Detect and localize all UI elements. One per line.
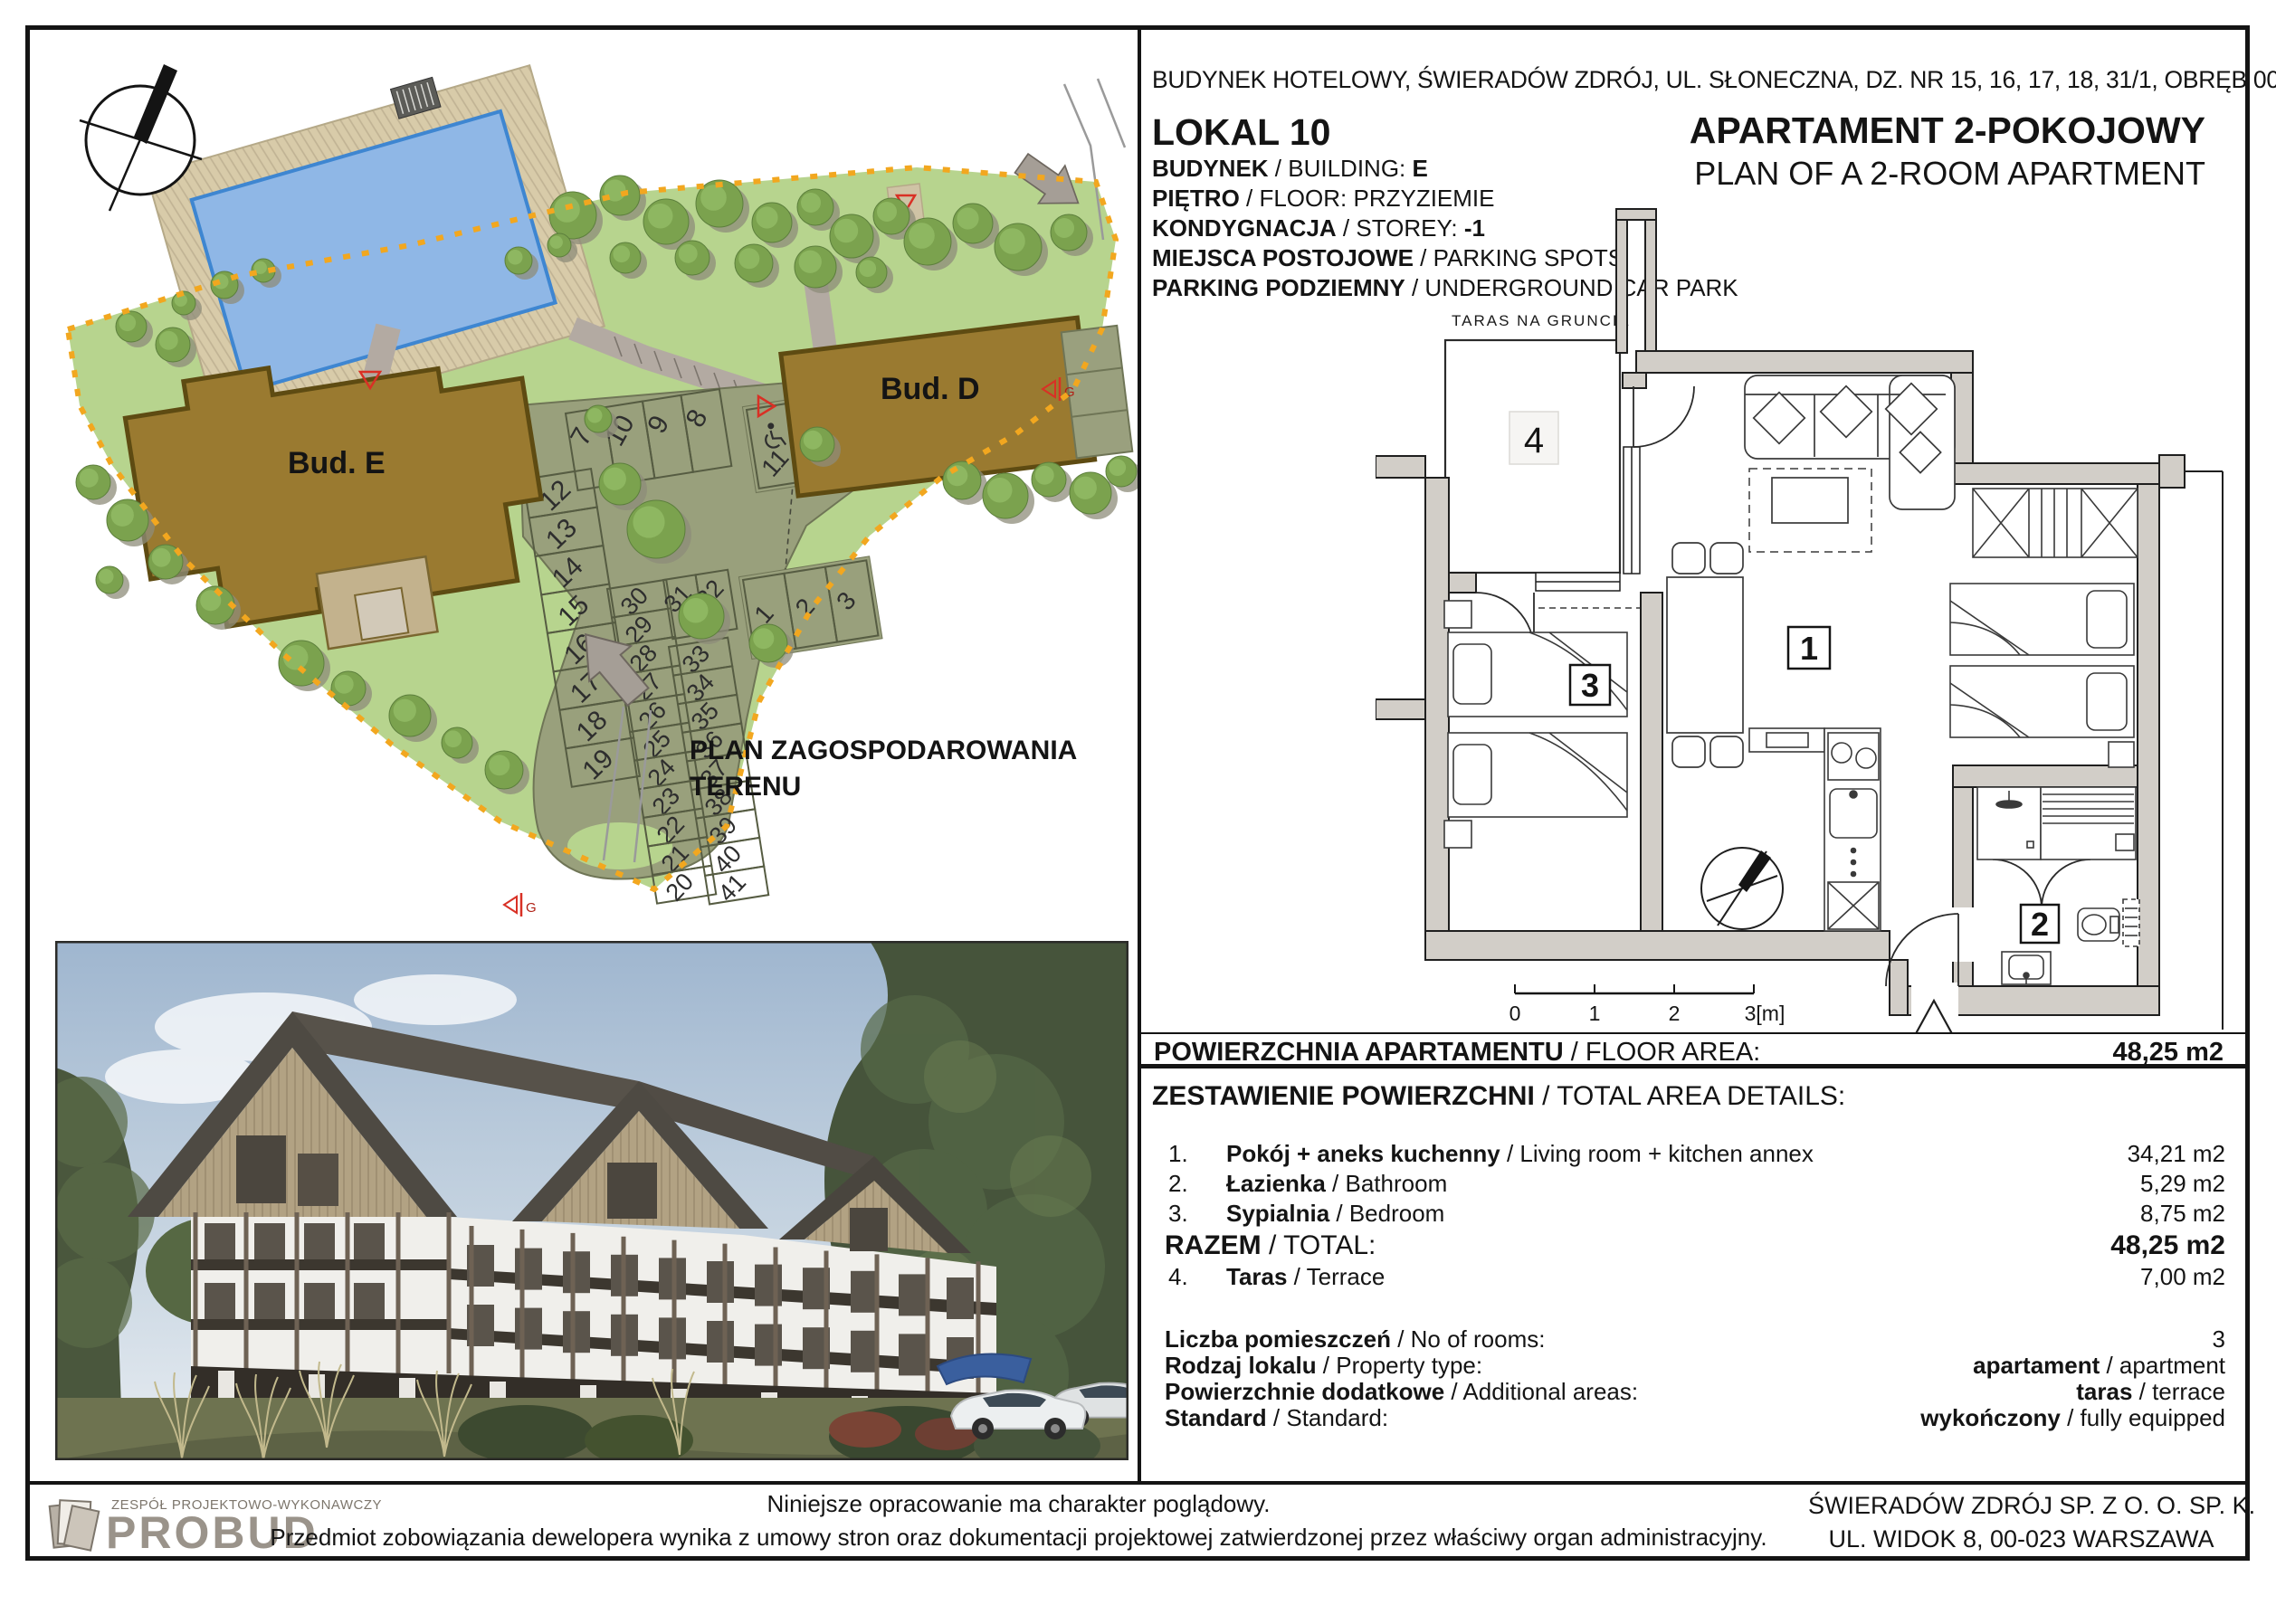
plan-compass-icon — [1701, 848, 1783, 929]
vertical-divider — [1138, 30, 1141, 1481]
wardrobe — [1973, 489, 2138, 557]
area-details-table: 1.Pokój + aneks kuchenny / Living room +… — [1152, 1139, 2225, 1292]
room-bedroom-label: 3 — [1570, 665, 1610, 705]
svg-text:0: 0 — [1509, 1002, 1521, 1025]
apartment-title-pl: APARTAMENT 2-POKOJOWY — [1690, 109, 2205, 152]
area-row: 1.Pokój + aneks kuchenny / Living room +… — [1152, 1139, 2225, 1169]
disclaimer-line2: Przedmiot zobowiązania dewelopera wynika… — [243, 1524, 1795, 1552]
spec-row: Liczba pomieszczeń / No of rooms:3 — [1152, 1326, 2225, 1353]
site-plan-map: 7109812131415161718193029282726252423222… — [30, 30, 1138, 945]
svg-text:3: 3 — [1581, 667, 1599, 704]
svg-text:4: 4 — [1524, 421, 1544, 461]
area-row-total: RAZEM / TOTAL:48,25 m2 — [1152, 1229, 2225, 1262]
site-plan-caption-line1: PLAN ZAGOSPODAROWANIA — [690, 736, 1077, 765]
context-lines — [2185, 471, 2223, 1030]
site-plan-caption-line2: TERENU — [690, 772, 801, 802]
scale-bar — [1515, 984, 1754, 993]
area-row: 2.Łazienka / Bathroom5,29 m2 — [1152, 1169, 2225, 1199]
room-terrace-label: 4 — [1509, 412, 1558, 464]
bedroom-furniture — [1444, 601, 1627, 848]
unit-spec-rows: Liczba pomieszczeń / No of rooms:3Rodzaj… — [1152, 1326, 2225, 1431]
spec-row: Powierzchnie dodatkowe / Additional area… — [1152, 1379, 2225, 1405]
building-rendering-photo — [55, 941, 1128, 1460]
floor-area-label: POWIERZCHNIA APARTAMENTU / FLOOR AREA: — [1154, 1038, 1760, 1068]
sheet-address: BUDYNEK HOTELOWY, ŚWIERADÓW ZDRÓJ, UL. S… — [1152, 66, 2276, 94]
company-address: UL. WIDOK 8, 00-023 WARSZAWA — [1808, 1525, 2234, 1553]
floor-area-value: 48,25 m2 — [2112, 1038, 2224, 1068]
coffee-table — [1772, 478, 1848, 523]
svg-text:1: 1 — [1800, 630, 1818, 667]
svg-text:2: 2 — [1669, 1002, 1681, 1025]
guest-beds — [1950, 584, 2134, 767]
building-e-label: Bud. E — [288, 446, 386, 480]
svg-text:3[m]: 3[m] — [1745, 1002, 1786, 1025]
dining-set — [1667, 543, 1743, 767]
floor-area-row: POWIERZCHNIA APARTAMENTU / FLOOR AREA: 4… — [1141, 1032, 2245, 1068]
unit-title: LOKAL 10 — [1152, 111, 1330, 154]
spec-row: Rodzaj lokalu / Property type:apartament… — [1152, 1353, 2225, 1379]
gate-symbol-1: G — [504, 893, 537, 916]
plan-sheet-page: 7109812131415161718193029282726252423222… — [25, 25, 2250, 1561]
terrace-note: TARAS NA GRUNCIE — [1452, 312, 1631, 329]
spec-row: Standard / Standard:wykończony / fully e… — [1152, 1405, 2225, 1431]
area-details-title: ZESTAWIENIE POWIERZCHNI / TOTAL AREA DET… — [1152, 1081, 1845, 1112]
building-d-label: Bud. D — [881, 372, 980, 406]
scale-labels: 0 1 2 3[m] — [1509, 1002, 1786, 1025]
probud-logo-icon — [44, 1490, 104, 1557]
area-row: 3.Sypialnia / Bedroom8,75 m2 — [1152, 1199, 2225, 1229]
company-name: ŚWIERADÓW ZDRÓJ SP. Z O. O. SP. K. — [1808, 1492, 2234, 1520]
area-row: 4.Taras / Terrace7,00 m2 — [1152, 1262, 2225, 1292]
apartment-title-en: PLAN OF A 2-ROOM APARTMENT — [1694, 155, 2205, 193]
room-living-label: 1 — [1788, 627, 1830, 669]
gate-letter: G — [526, 900, 537, 916]
disclaimer-line1: Niniejsze opracowanie ma charakter poglą… — [243, 1490, 1795, 1518]
floor-plan: TARAS NA GRUNCIE 4 — [1376, 204, 2273, 1034]
svg-text:1: 1 — [1589, 1002, 1601, 1025]
footer: ZESPÓŁ PROJEKTOWO-WYKONAWCZY PROBUD Nini… — [30, 1481, 2245, 1556]
bathroom — [1977, 787, 2139, 984]
room-bath-label: 2 — [2021, 905, 2059, 943]
svg-text:2: 2 — [2031, 906, 2049, 943]
unit-info-line: BUDYNEK / BUILDING: E — [1152, 154, 1738, 184]
